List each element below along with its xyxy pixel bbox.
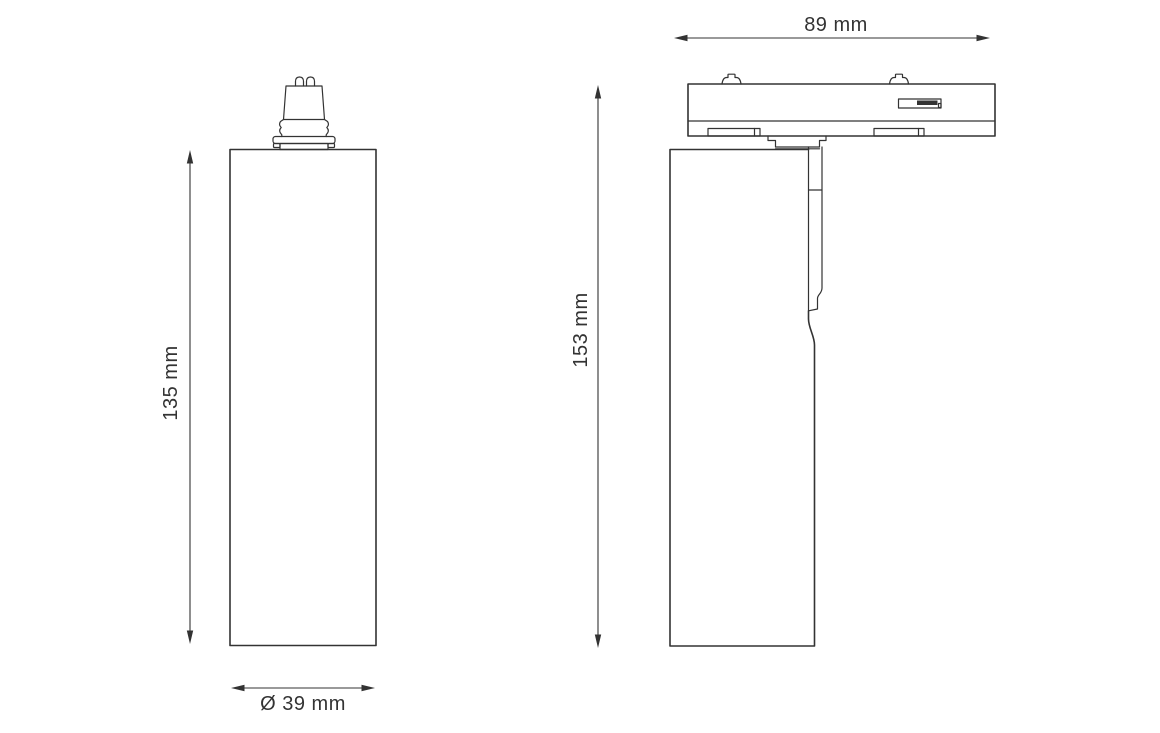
dimension-side-depth-label: 89 mm	[804, 14, 868, 36]
connector-flange-foot-right	[328, 144, 335, 148]
mounting-arm	[809, 147, 823, 311]
dimension-front-diameter-arrow-right	[362, 685, 376, 691]
dimension-front-height-arrow-top	[187, 150, 193, 164]
connector-flange-plate	[273, 137, 335, 144]
dimension-front-diameter-arrow-left	[231, 685, 245, 691]
dimension-front-height-label: 135 mm	[160, 345, 182, 420]
phase-selector-slider	[917, 101, 938, 106]
connector-flange-collar	[280, 144, 328, 150]
connector-ribbed-neck	[280, 120, 329, 137]
lamp-body-front	[230, 150, 376, 646]
dimension-front-diameter-label: Ø 39 mm	[260, 693, 346, 715]
dimension-side-height-arrow-top	[595, 85, 601, 99]
dimension-front-height: 135 mm	[160, 150, 193, 644]
track-adapter	[688, 74, 995, 136]
connector-rib-left	[280, 120, 284, 137]
side-view: 89 mm	[570, 14, 995, 648]
connector-pins	[296, 77, 315, 86]
phase-selector-switch	[899, 99, 942, 108]
track-adapter-clip-bump-left	[722, 74, 741, 84]
track-adapter-clip-bump-right	[890, 74, 909, 84]
dimension-front-height-arrow-bottom	[187, 631, 193, 645]
track-contact-tab-left	[708, 129, 760, 137]
adapter-neck	[768, 136, 826, 149]
connector-flange	[273, 137, 335, 150]
dimension-side-depth-arrow-right	[977, 35, 991, 41]
mounting-arm-back-edge	[809, 147, 823, 311]
lamp-body-side	[670, 150, 815, 647]
dimension-side-height: 153 mm	[570, 85, 601, 648]
dimension-front-diameter: Ø 39 mm	[231, 685, 375, 715]
phase-selector-notch	[939, 104, 942, 108]
track-contact-tab-right	[874, 129, 924, 137]
dimension-side-height-label: 153 mm	[570, 292, 592, 367]
dimension-side-depth: 89 mm	[674, 14, 990, 41]
front-view: 135 mm Ø 39 mm	[160, 77, 376, 715]
connector-housing	[284, 86, 325, 120]
connector-pin-left	[296, 77, 304, 86]
adapter-neck-channel	[768, 136, 826, 147]
track-contact-tabs	[708, 129, 924, 137]
technical-drawing: 135 mm Ø 39 mm 89 mm	[0, 0, 1160, 733]
connector-pin-right	[307, 77, 315, 86]
dimension-side-depth-arrow-left	[674, 35, 688, 41]
dimension-side-height-arrow-bottom	[595, 635, 601, 649]
connector-flange-foot-left	[274, 144, 281, 148]
connector-rib-right	[325, 120, 329, 137]
drawing-canvas: 135 mm Ø 39 mm 89 mm	[0, 0, 1160, 733]
